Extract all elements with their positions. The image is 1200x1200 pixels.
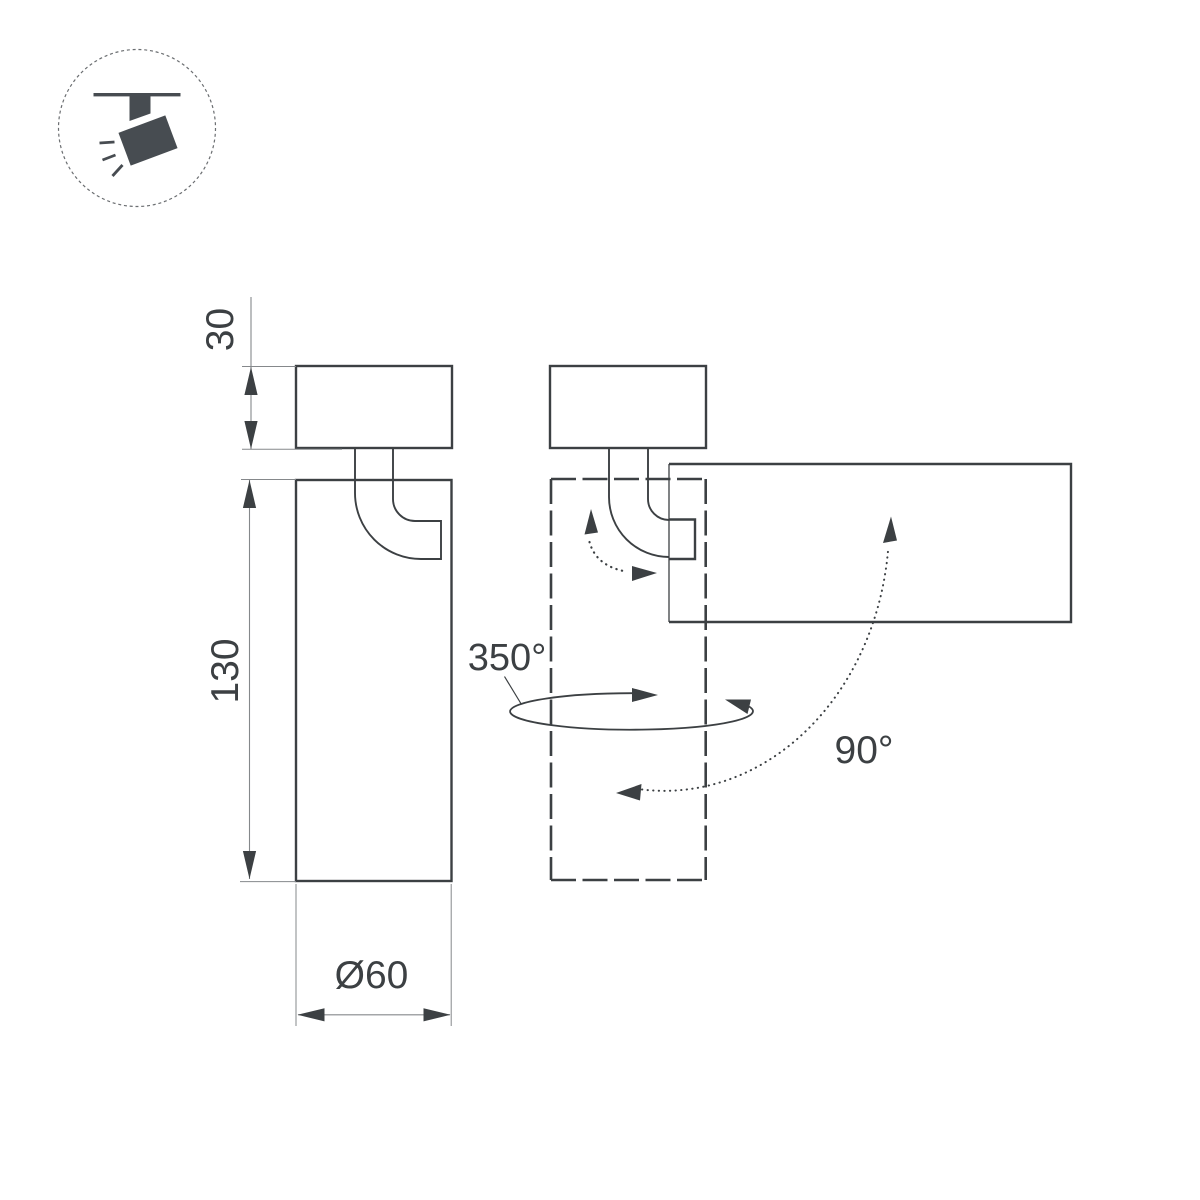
svg-text:130: 130 bbox=[204, 638, 247, 703]
svg-text:350°: 350° bbox=[468, 637, 547, 679]
svg-text:90°: 90° bbox=[835, 729, 894, 772]
svg-text:30: 30 bbox=[199, 308, 242, 351]
svg-text:Ø60: Ø60 bbox=[335, 954, 409, 997]
